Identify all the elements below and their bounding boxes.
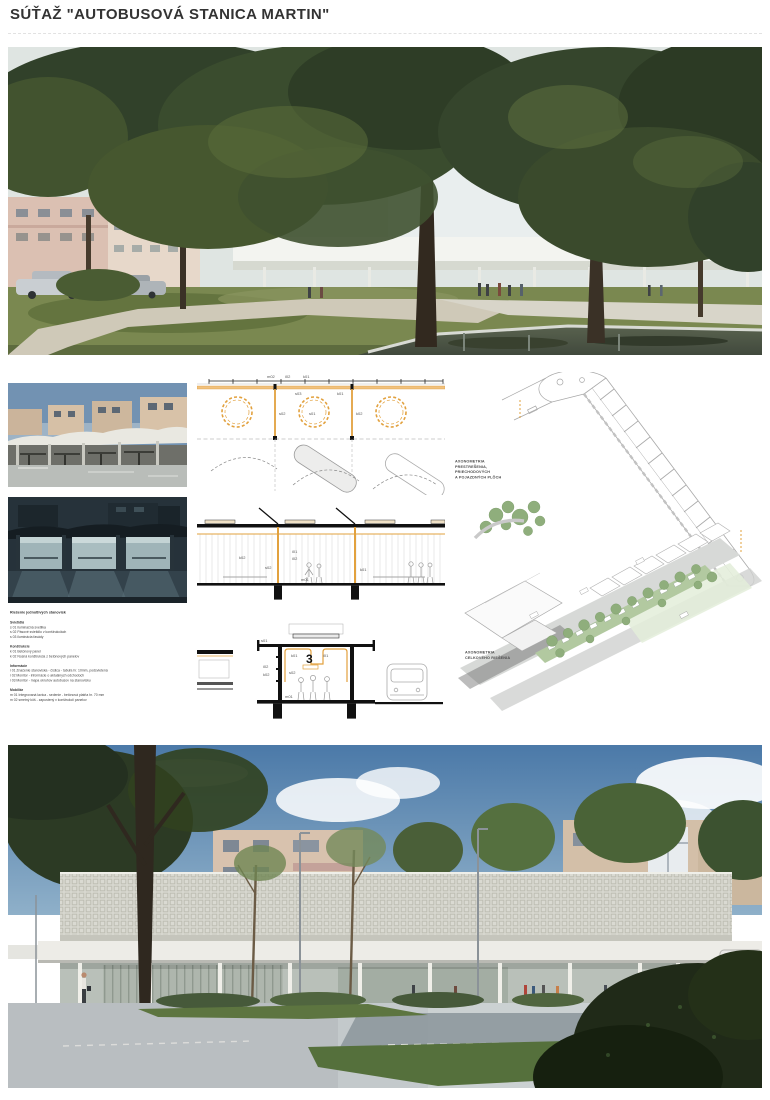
drawing-detail-svg: 3 s01 k01 i01 i02 k02 s02 m01 (197, 622, 443, 720)
drawing-section: k02 i01 i02 s02 m01 k01 (197, 503, 445, 602)
dimension-line (209, 379, 443, 384)
render-main-svg (8, 47, 762, 355)
svg-text:k01: k01 (291, 653, 298, 658)
svg-text:k01: k01 (303, 374, 310, 379)
svg-text:m01: m01 (301, 577, 310, 582)
render-elevation-svg: 1 (8, 745, 762, 1088)
svg-text:i01: i01 (323, 653, 329, 658)
svg-text:s01: s01 (261, 638, 268, 643)
render-platforms-night (8, 497, 187, 603)
svg-text:i01: i01 (292, 549, 298, 554)
axonometry-overall-label: AXONOMETRIA CELKOVÉHO RIEŠENIA (465, 650, 535, 671)
svg-text:s03: s03 (295, 391, 302, 396)
svg-text:s02: s02 (289, 670, 296, 675)
axonometry-overall-svg (440, 493, 770, 715)
head-plaza (502, 372, 606, 420)
legend-item: i 03 Monitor - mapa okruhov autobusov na… (10, 679, 191, 684)
legend-heading: Riešenie jednotlivých stanovísk (10, 610, 191, 615)
svg-text:i02: i02 (285, 374, 291, 379)
drawing-plan-svg: m02 i02 k01 s03 k01 s02 s01 k02 (197, 373, 445, 495)
glass-hatch (199, 534, 443, 583)
drawing-detail: 3 s01 k01 i01 i02 k02 s02 m01 (197, 622, 443, 720)
fascia-band (8, 941, 762, 963)
legend-section-structures: Konštrukcie k 01 Betónový panel k 02 Nos… (10, 645, 191, 660)
legend-item: m 02 smetný kôš - zapustený v konštrukci… (10, 698, 191, 703)
canopy-band (197, 386, 445, 389)
drawing-plan: m02 i02 k01 s03 k01 s02 s01 k02 (197, 373, 445, 495)
lit-bays (16, 535, 174, 571)
ground-slab (197, 583, 445, 586)
svg-text:i02: i02 (263, 664, 269, 669)
shelter-box: 3 (257, 624, 375, 700)
render-day-svg (8, 383, 187, 487)
axonometry-overall (440, 493, 770, 715)
crop-mark (8, 33, 762, 34)
svg-text:m01: m01 (285, 694, 294, 699)
platform-number: 3 (306, 652, 313, 666)
svg-text:i02: i02 (292, 556, 298, 561)
svg-text:m02: m02 (267, 374, 276, 379)
bus-outlines (211, 442, 445, 495)
svg-text:k02: k02 (239, 555, 246, 560)
screen-facade (60, 873, 732, 941)
detail-code-labels: s01 k01 i01 i02 k02 s02 m01 (261, 638, 329, 699)
legend-item: s 03 iluminácia fasády (10, 635, 191, 640)
svg-text:k02: k02 (356, 411, 363, 416)
legend-section-information: Informácie i 01 Značenie stanoviska - čí… (10, 664, 191, 684)
svg-text:s01: s01 (309, 411, 316, 416)
bus-front (387, 664, 427, 700)
svg-text:k01: k01 (360, 567, 367, 572)
bushes (156, 993, 260, 1009)
svg-text:s02: s02 (279, 411, 286, 416)
ground-slab (257, 700, 375, 704)
render-platforms-day (8, 383, 187, 487)
render-main-elevation: 1 (8, 745, 762, 1088)
render-main-perspective (8, 47, 762, 355)
legend-section-lights: Svietidlá s 01 iluminačná svetilka s 02 … (10, 620, 191, 640)
drawing-section-svg: k02 i01 i02 s02 m01 k01 (197, 503, 445, 602)
adjacent-fragment (197, 650, 233, 690)
svg-text:k01: k01 (337, 391, 344, 396)
svg-text:k02: k02 (263, 672, 270, 677)
render-night-svg (8, 497, 187, 603)
legend-item: k 02 Nosná konštrukcia z betónových pane… (10, 654, 191, 659)
page-title: SÚŤAŽ "AUTOBUSOVÁ STANICA MARTIN" (10, 6, 330, 23)
roof (197, 508, 445, 528)
svg-text:s02: s02 (265, 565, 272, 570)
plan-code-labels: m02 i02 k01 s03 k01 s02 s01 k02 (267, 374, 363, 416)
people-figures (298, 675, 330, 700)
legend-section-furniture: Mobiliár m 01 Integrovaná lavica - seden… (10, 688, 191, 703)
